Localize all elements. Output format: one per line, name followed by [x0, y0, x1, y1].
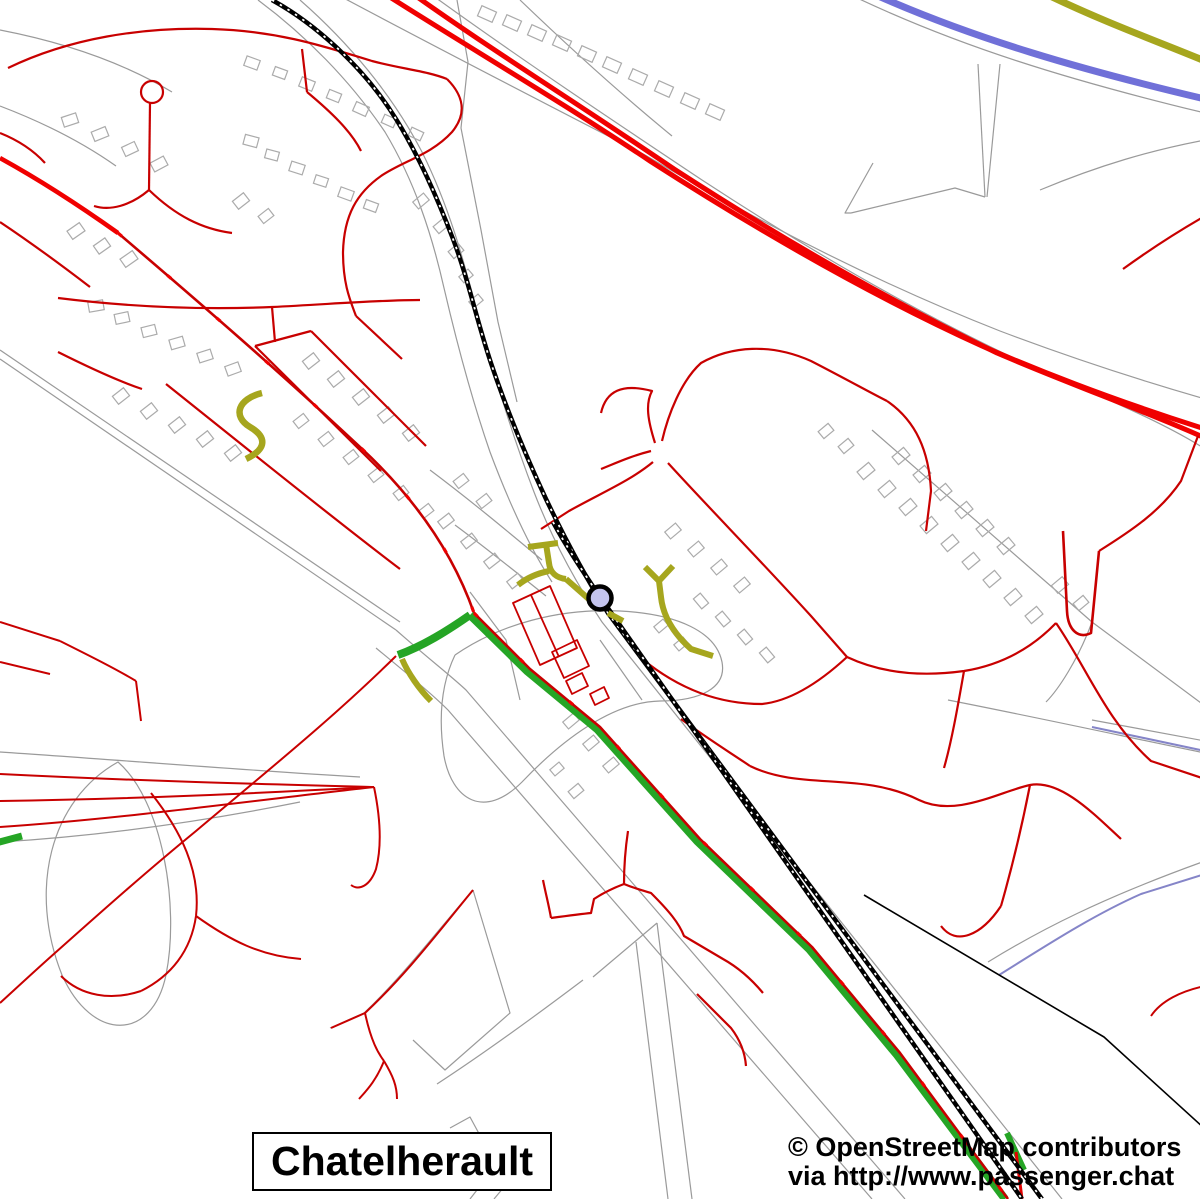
building-outline [196, 431, 213, 447]
street-ne-down [1056, 623, 1200, 779]
building-outline [352, 389, 369, 405]
street-east-connector [944, 671, 964, 768]
building-outline [680, 93, 699, 110]
building-outline [654, 81, 673, 98]
building-outline [197, 349, 213, 363]
building-outline [552, 35, 571, 52]
building-outline [453, 473, 469, 488]
building-outline [418, 503, 434, 518]
boundary-ne-upper [1040, 140, 1200, 190]
street-join [356, 316, 402, 359]
boundary-sw-edge-2 [0, 359, 396, 630]
building-outline [705, 104, 724, 121]
street-spoke-2 [94, 190, 149, 208]
building-outline [711, 559, 728, 575]
building-outline [527, 25, 546, 42]
route-green-west [398, 615, 470, 655]
boundary-blue-flank [853, 0, 1200, 113]
street-circle [141, 81, 163, 103]
building-outline [343, 449, 359, 464]
building-outline [577, 46, 596, 63]
street-left-1 [0, 133, 45, 163]
building-outline [502, 15, 521, 32]
building-outline [122, 142, 139, 157]
building-outline [120, 251, 138, 268]
boundary-sw-strip-2 [0, 802, 300, 842]
building-outline [759, 647, 774, 663]
street-east-wave-3 [750, 766, 1121, 839]
path-sw-fan-3 [0, 787, 374, 827]
boundary-bottom-flank-1 [593, 923, 657, 977]
place-label-text: Chatelherault [271, 1138, 533, 1185]
building-outline [715, 611, 730, 627]
boundary-bottom-parcel-1 [413, 890, 510, 1070]
railway-track-second [553, 522, 1022, 1199]
building-outline [920, 516, 938, 533]
boundary-nw-top-2 [0, 106, 116, 166]
building-outline [61, 113, 78, 127]
building-outline [688, 541, 705, 557]
path-sw-fan-1 [0, 774, 374, 787]
boundary-sw-path [330, 890, 473, 1028]
attribution: © OpenStreetMap contributors via http://… [788, 1133, 1200, 1191]
path-sw-curl-2 [61, 976, 141, 996]
building-outline [150, 156, 168, 172]
boundary-ne-triangle-1 [851, 188, 985, 213]
building-outline [550, 762, 564, 776]
route-green-left-edge [0, 836, 22, 843]
street-parallel [166, 384, 400, 569]
building-outline [413, 193, 430, 209]
street-ne-arc [662, 349, 887, 441]
attribution-line-2: via http://www.passenger.chat [788, 1162, 1200, 1191]
street-ne-diagonal [668, 463, 847, 657]
building-outline [168, 417, 185, 433]
building-outline [941, 534, 959, 551]
building-outline [818, 423, 834, 438]
street-left-2 [0, 222, 90, 287]
building-outline [141, 324, 157, 337]
street-spoke-1 [149, 103, 150, 190]
street-row-west [58, 352, 142, 389]
building-outline [583, 735, 600, 751]
boundary-ne-triangle-3 [987, 64, 1000, 197]
building-outline [737, 629, 752, 645]
path-sw-red [331, 890, 473, 1028]
building-outline [338, 187, 355, 201]
place-label-box: Chatelherault [252, 1132, 552, 1191]
building-outline [857, 462, 875, 479]
street-hook-up [1099, 436, 1198, 551]
building-outline [302, 353, 319, 369]
building-outline [402, 425, 419, 441]
building-outline [363, 200, 378, 213]
building-outline [318, 431, 334, 446]
street-rightbottom [1151, 986, 1200, 1016]
building-outline [408, 127, 424, 141]
building-outline [258, 208, 274, 223]
street-cross-3 [255, 331, 311, 346]
footpath-olive-station-1 [528, 543, 558, 547]
building-outline [461, 533, 478, 549]
building-outline [112, 388, 129, 404]
building-outline [602, 57, 621, 74]
building-outline [899, 498, 917, 515]
railway-track-main [272, 0, 1042, 1199]
building-outline [838, 438, 854, 453]
street-mid-vertical [272, 307, 275, 342]
street-topright [1123, 216, 1200, 269]
railway-track-main-hatch [272, 0, 1042, 1199]
street-leftmid-1 [0, 622, 60, 641]
building-outline [693, 593, 708, 609]
street-crescent [8, 29, 447, 79]
building-outline [243, 134, 259, 147]
building-outline [244, 56, 261, 70]
stream-2 [999, 874, 1200, 975]
building-outline [734, 577, 751, 593]
building-outline [91, 127, 109, 142]
path-sw-curl-3 [196, 916, 301, 959]
path-sw-fan-vertical [351, 787, 380, 887]
building-outline [265, 149, 280, 161]
footpath-olive-south [402, 659, 431, 701]
station-marker[interactable] [589, 587, 612, 610]
path-black-thin [864, 895, 1200, 1129]
corridor-road-arrows [474, 613, 1008, 1199]
street-leftmid-3 [0, 662, 50, 674]
street-roundabout-w [601, 451, 651, 469]
boundary-east-parcel [948, 700, 1200, 753]
red-building-small [566, 673, 609, 705]
boundary-ne-triangle-4 [845, 163, 873, 213]
map-canvas[interactable]: Chatelherault © OpenStreetMap contributo… [0, 0, 1200, 1199]
footpath-olive-s-curve [240, 393, 263, 459]
building-outline [67, 223, 85, 240]
route-blue-top [876, 0, 1200, 99]
building-outline [603, 757, 620, 773]
building-outline [438, 513, 455, 529]
building-outline [272, 67, 287, 80]
red-building-2 [552, 640, 589, 678]
main-road-wide [0, 158, 118, 233]
building-outline [326, 89, 341, 102]
building-outline [477, 6, 496, 23]
building-outline [1004, 588, 1022, 605]
street-south-net-1 [543, 880, 551, 918]
street-east-branch [1001, 785, 1030, 906]
red-building-inner [531, 595, 559, 657]
street-mid-horizontal [58, 298, 420, 308]
street-south-net-2 [551, 884, 763, 993]
boundary-ne-triangle-2 [978, 64, 985, 197]
building-outline [225, 362, 242, 376]
building-outline [169, 336, 185, 349]
path-sw-branch-2 [359, 1061, 384, 1099]
boundary-station-street-3 [470, 592, 520, 700]
boundary-sw-strip-1 [0, 752, 360, 777]
boundary-bottom-flank-3 [636, 942, 668, 1199]
route-olive-top [1048, 0, 1200, 61]
path-sw-branch-1 [365, 1013, 384, 1061]
building-outline [568, 783, 584, 798]
building-outline [313, 175, 328, 188]
building-outline [353, 102, 370, 117]
building-outline [327, 371, 344, 387]
footpath-olive-east-y [645, 566, 713, 656]
building-outline [983, 570, 1001, 587]
street-east-loop [941, 906, 1001, 936]
building-outline [93, 238, 110, 254]
building-outline [140, 403, 157, 419]
building-outline [293, 413, 309, 428]
building-outline [878, 480, 896, 497]
building-outline [114, 312, 130, 325]
corridor-road [474, 613, 1008, 1199]
building-outline [484, 553, 501, 569]
attribution-line-1: © OpenStreetMap contributors [788, 1133, 1200, 1162]
boundary-ne-long [872, 430, 1200, 706]
boundary-bottom-parcel-2 [437, 980, 583, 1084]
street-ne-diagonal-east [847, 623, 1056, 674]
building-outline [476, 493, 492, 508]
boundary-stream-flank-2 [988, 861, 1200, 962]
building-outline [628, 69, 647, 86]
building-outline [665, 523, 682, 539]
building-outline [377, 407, 394, 423]
boundary-sw-edge-1 [0, 350, 400, 622]
building-outline [224, 445, 241, 461]
map-rendering [0, 0, 1200, 1199]
street-leftmid-2 [60, 641, 136, 681]
building-outline [1025, 606, 1043, 623]
street-cross-2 [311, 331, 426, 446]
path-sw-branch-3 [384, 1061, 397, 1099]
street-spoke-3 [149, 190, 232, 233]
street-ne-loop [601, 388, 655, 443]
building-outline [289, 161, 305, 175]
street-hook [1063, 531, 1099, 635]
boundary-corridor-flank-2 [376, 648, 872, 1199]
building-outline [232, 193, 249, 209]
building-outline [962, 552, 980, 569]
street-leftmid-4 [136, 681, 141, 721]
